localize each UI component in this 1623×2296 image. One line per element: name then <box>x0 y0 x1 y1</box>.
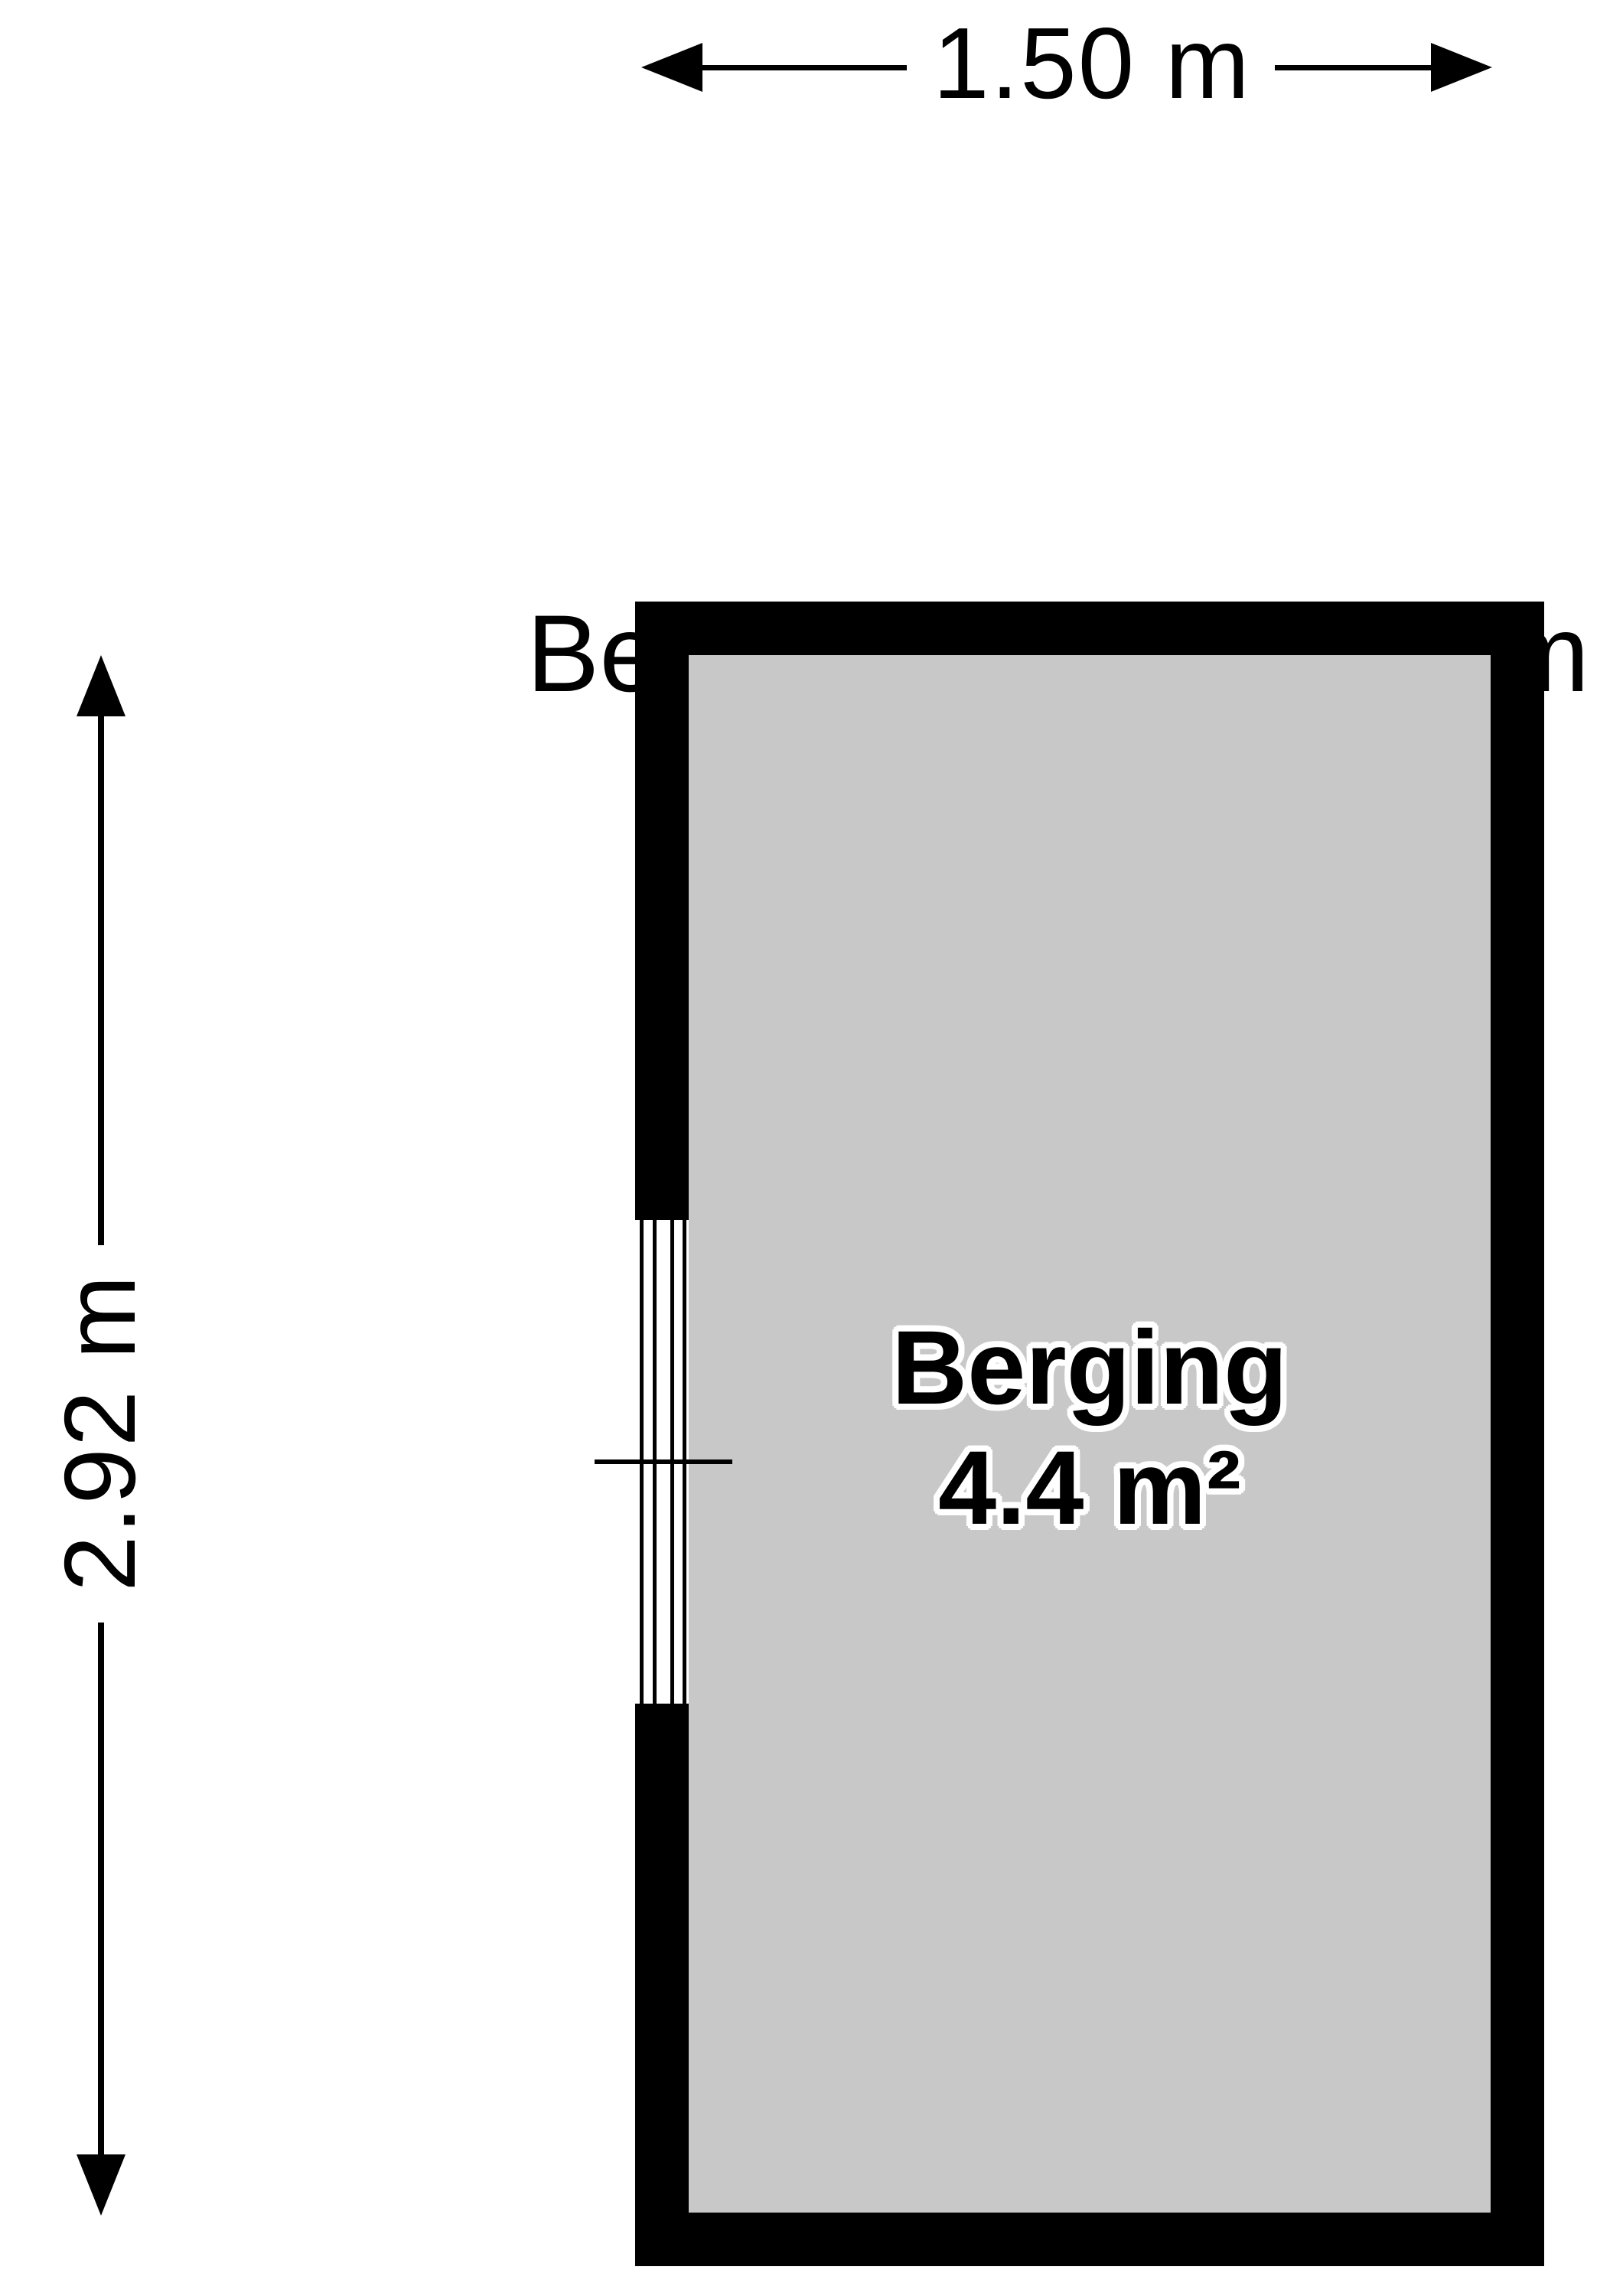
width-dimension-line-right <box>1275 65 1443 70</box>
room-label: Berging 4.4 m² <box>891 1308 1288 1548</box>
window-center-tick <box>595 1459 732 1464</box>
floorplan-page: { "header": { "room_name": "Berging", "c… <box>0 0 1623 2296</box>
room-area-text: 4.4 m² <box>891 1428 1288 1548</box>
width-dimension-line-left <box>693 65 907 70</box>
room-name-text: Berging <box>891 1308 1288 1428</box>
width-dimension-label: 1.50 m <box>933 13 1251 114</box>
arrow-down-icon <box>77 2154 125 2216</box>
height-dimension-label: 2.92 m <box>50 1274 151 1592</box>
arrow-up-icon <box>77 655 125 716</box>
height-dimension-line-top <box>98 712 104 1245</box>
arrow-right-icon <box>1431 43 1492 92</box>
height-dimension-line-bottom <box>98 1623 104 2154</box>
height-dimension: 2.92 m <box>0 0 253 2296</box>
